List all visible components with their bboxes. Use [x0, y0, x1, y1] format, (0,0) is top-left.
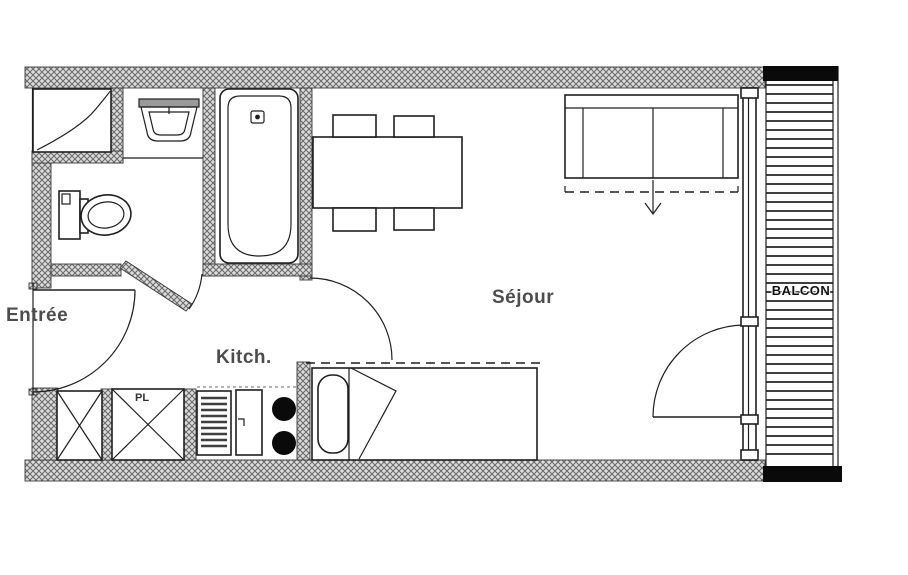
- kitchen-door-swing: [310, 278, 392, 360]
- floor-plan: Entrée Kitch. Séjour PL BALCON: [0, 0, 908, 575]
- sofa-bed: [565, 95, 738, 214]
- balcony-label: BALCON: [761, 283, 841, 298]
- dining-table: [313, 137, 462, 208]
- balcony-door: [653, 325, 744, 417]
- window-wall: [741, 88, 758, 460]
- living-room-label: Séjour: [492, 287, 554, 309]
- appliance-box-1: [57, 391, 102, 460]
- dish-rack: [197, 391, 231, 455]
- entrance-label: Entrée: [6, 305, 68, 327]
- single-bed: [306, 363, 541, 460]
- wardrobe: [33, 89, 111, 152]
- cabinet: [236, 390, 262, 455]
- pillow: [318, 375, 348, 453]
- washbasin: [139, 99, 199, 141]
- hob-burners: [272, 397, 296, 455]
- fold-out-arrow: [645, 180, 661, 214]
- bathtub: [220, 89, 298, 263]
- bathroom-door: [120, 261, 202, 311]
- closet-label: PL: [135, 392, 149, 404]
- balcony-decking: [763, 66, 842, 482]
- balcony-bottom-rail: [763, 466, 842, 482]
- kitchen-label: Kitch.: [216, 347, 272, 369]
- balcony-top-rail: [763, 66, 838, 81]
- toilet: [59, 191, 134, 239]
